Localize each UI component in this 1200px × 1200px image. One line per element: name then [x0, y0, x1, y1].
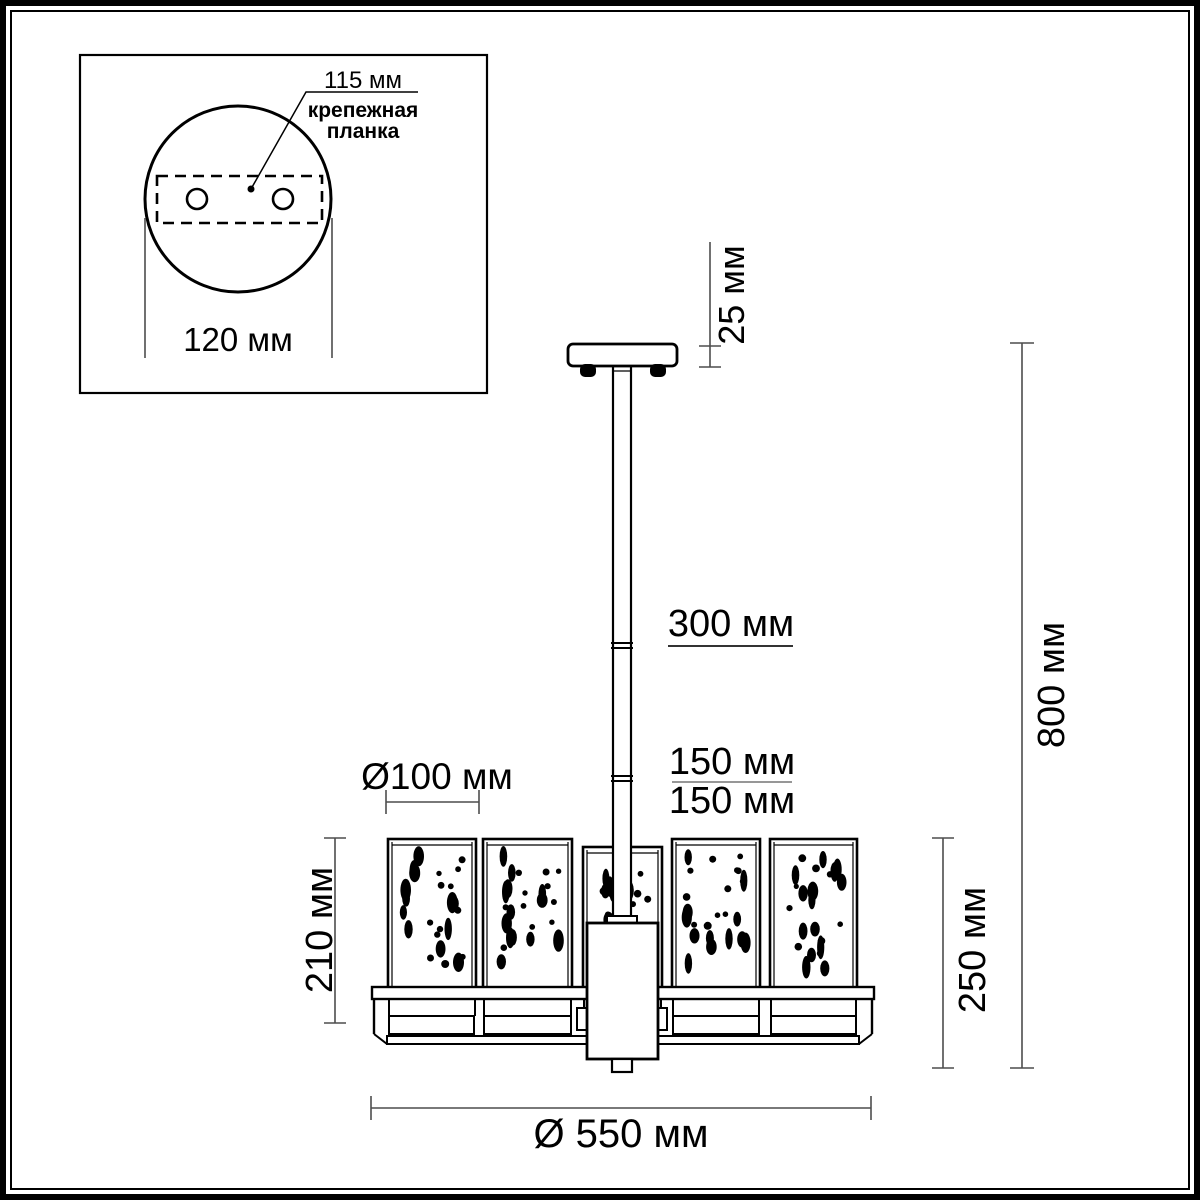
dim-rod-bottom-label: 150 мм — [669, 780, 795, 822]
perforation-dot — [724, 885, 731, 892]
perforation-dot — [451, 897, 459, 911]
hanging-rod — [607, 366, 637, 924]
center-hub — [577, 923, 667, 1072]
perforation-dot — [543, 869, 550, 876]
perforation-dot — [413, 846, 424, 866]
perforation-dot — [644, 896, 651, 903]
perforation-dot — [500, 846, 508, 867]
perforation-dot — [725, 928, 732, 949]
hub-box — [587, 923, 658, 1059]
ceiling-cup-top-view — [145, 106, 331, 292]
shade-rim — [771, 1016, 856, 1034]
perforation-dot — [837, 921, 843, 927]
perforation-dot — [501, 944, 508, 951]
perforation-dot — [740, 870, 747, 892]
hole-pitch-label: 115 мм — [324, 67, 402, 94]
perforation-dot — [792, 865, 800, 885]
canopy-screw-left — [580, 364, 596, 377]
shade-rim — [389, 1016, 474, 1034]
dim-canopy-height: 25 мм — [699, 242, 752, 367]
perforation-dot — [503, 904, 509, 910]
technical-drawing: 115 мм крепежная планка 120 мм — [0, 0, 1200, 1200]
perforation-dot — [545, 883, 551, 889]
dim-body-height: 250 мм — [932, 838, 994, 1068]
dim-overall-diameter: Ø 550 мм — [371, 1096, 871, 1156]
base-width-label: 120 мм — [183, 321, 293, 358]
perforation-dot — [715, 912, 721, 918]
perforation-dot — [735, 868, 742, 875]
plate-label-line2: планка — [327, 120, 400, 143]
perforation-dot — [400, 879, 411, 902]
shade-rim — [673, 1016, 759, 1034]
dim-rod-sections-lower: 150 мм 150 мм — [669, 741, 795, 822]
perforation-dot — [634, 890, 642, 898]
perforation-dot — [521, 903, 527, 909]
perforation-dot — [437, 926, 443, 932]
perforation-dot — [551, 899, 557, 905]
perforation-dot — [441, 960, 449, 968]
dim-total-height: 800 мм — [1010, 343, 1073, 1068]
perforation-dot — [445, 918, 452, 940]
dim-shade-height-label: 210 мм — [299, 867, 341, 993]
mounting-plate-inset: 115 мм крепежная планка 120 мм — [80, 55, 487, 393]
plate-label-line1: крепежная — [308, 99, 419, 122]
perforation-dot — [690, 928, 700, 943]
mounting-hole-right — [273, 189, 293, 209]
dim-shade-diameter: Ø100 мм — [361, 756, 513, 814]
perforation-dot — [436, 940, 446, 957]
perforation-dot — [526, 932, 534, 947]
dim-shade-height: 210 мм — [299, 838, 346, 1023]
dim-total-height-label: 800 мм — [1031, 622, 1073, 748]
perforation-dot — [737, 931, 747, 947]
perforation-dot — [522, 890, 527, 895]
mounting-hole-left — [187, 189, 207, 209]
perforation-dot — [600, 887, 608, 895]
hub-nub — [612, 1059, 632, 1072]
perforation-dot — [516, 870, 522, 876]
perforation-dot — [737, 854, 743, 860]
perforation-dot — [682, 907, 692, 928]
perforation-dot — [556, 869, 561, 874]
perforation-dot — [691, 922, 697, 928]
perforation-dot — [685, 953, 692, 974]
perforation-dot — [448, 883, 454, 889]
canopy-screw-right — [650, 364, 666, 377]
perforation-dot — [799, 923, 808, 940]
rod-body — [613, 366, 631, 923]
perforation-dot — [786, 905, 792, 911]
dim-rod-section-top: 300 мм — [668, 603, 794, 646]
perforation-dot — [807, 948, 816, 963]
perforation-dot — [837, 874, 847, 891]
perforation-dot — [733, 912, 741, 927]
perforation-dot — [812, 865, 820, 873]
perforation-dot — [434, 931, 440, 937]
perforation-dot — [819, 851, 826, 868]
dim-canopy-height-label: 25 мм — [711, 245, 752, 345]
dim-body-height-label: 250 мм — [952, 887, 994, 1013]
dim-rod-mid-label: 150 мм — [669, 741, 795, 783]
perforation-dot — [502, 881, 510, 904]
perforation-dot — [706, 939, 717, 955]
mounting-strap-dashed — [157, 176, 322, 223]
perforation-dot — [553, 929, 564, 951]
perforation-dot — [794, 884, 799, 889]
perforation-dot — [817, 935, 824, 959]
perforation-dot — [704, 922, 712, 930]
perforation-dot — [687, 868, 693, 874]
perforation-dot — [549, 920, 554, 925]
perforation-dot — [602, 869, 609, 889]
perforation-dot — [537, 893, 548, 908]
perforation-dot — [460, 954, 466, 960]
perforation-dot — [400, 905, 407, 920]
dim-overall-diameter-label: Ø 550 мм — [533, 1112, 708, 1156]
perforation-dot — [404, 920, 412, 938]
perforation-dot — [638, 871, 644, 877]
dim-rod-top-label: 300 мм — [668, 603, 794, 645]
perforation-dot — [427, 955, 434, 962]
shade-rim — [484, 1016, 571, 1034]
lamp-shade-5 — [770, 839, 857, 988]
perforation-dot — [497, 954, 506, 969]
perforation-dot — [810, 922, 820, 937]
perforation-dot — [683, 893, 691, 901]
perforation-dot — [455, 866, 461, 872]
perforation-dot — [508, 864, 516, 882]
perforation-dot — [820, 960, 829, 976]
perforation-dot — [685, 849, 692, 865]
hub-bracket-left — [577, 1008, 587, 1030]
perforation-dot — [723, 911, 729, 917]
frame-bevel-right — [859, 1034, 872, 1044]
dim-shade-diameter-label: Ø100 мм — [361, 756, 513, 797]
perforation-dot — [427, 920, 433, 926]
perforation-dot — [709, 856, 716, 863]
drawing-page: { "inset": { "hole_pitch_label": "115 мм… — [0, 0, 1200, 1200]
perforation-dot — [459, 856, 466, 863]
perforation-dot — [795, 943, 803, 951]
perforation-dot — [506, 927, 515, 948]
perforation-dot — [409, 864, 420, 882]
perforation-dot — [436, 871, 441, 876]
lamp-shade-2 — [483, 839, 572, 988]
perforation-dot — [798, 885, 807, 901]
perforation-dot — [438, 882, 445, 889]
perforation-dot — [529, 924, 535, 930]
perforation-dot — [807, 882, 818, 901]
frame-bevel-left — [374, 1034, 387, 1044]
perforation-dot — [798, 854, 806, 862]
canopy-body — [568, 344, 677, 366]
